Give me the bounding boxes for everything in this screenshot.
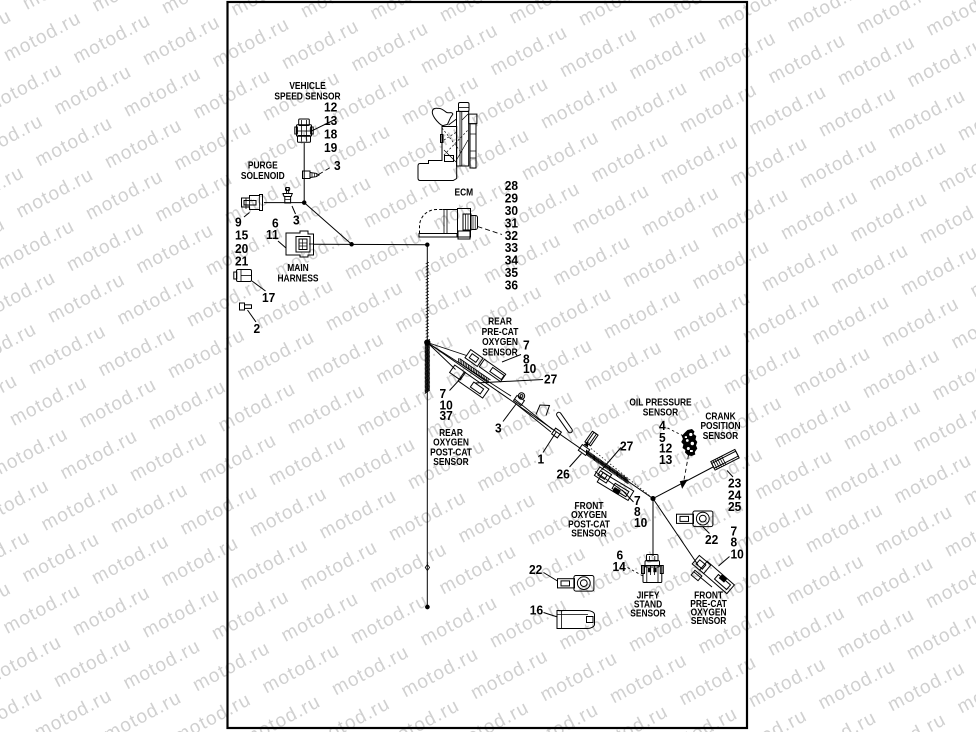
svg-text:27: 27 bbox=[620, 439, 633, 454]
svg-text:21: 21 bbox=[235, 254, 248, 269]
svg-text:SENSOR: SENSOR bbox=[703, 430, 739, 441]
svg-text:37: 37 bbox=[440, 408, 453, 423]
svg-text:1: 1 bbox=[538, 452, 545, 467]
svg-text:SENSOR: SENSOR bbox=[630, 608, 666, 619]
svg-text:36: 36 bbox=[505, 278, 518, 293]
svg-text:17: 17 bbox=[262, 290, 275, 305]
svg-text:18: 18 bbox=[324, 127, 337, 142]
svg-text:22: 22 bbox=[529, 563, 542, 578]
svg-text:SENSOR: SENSOR bbox=[691, 615, 727, 626]
svg-text:SENSOR: SENSOR bbox=[643, 407, 679, 418]
svg-text:SENSOR: SENSOR bbox=[482, 347, 518, 358]
svg-text:2: 2 bbox=[254, 321, 261, 336]
svg-text:19: 19 bbox=[324, 141, 337, 156]
svg-text:13: 13 bbox=[324, 114, 337, 129]
svg-text:7: 7 bbox=[523, 338, 530, 353]
svg-text:HARNESS: HARNESS bbox=[277, 273, 318, 284]
svg-text:PURGE: PURGE bbox=[248, 160, 278, 171]
svg-text:22: 22 bbox=[705, 532, 718, 547]
svg-text:11: 11 bbox=[266, 227, 279, 242]
svg-text:10: 10 bbox=[634, 515, 647, 530]
svg-text:3: 3 bbox=[293, 213, 300, 228]
svg-text:25: 25 bbox=[728, 500, 741, 515]
svg-text:10: 10 bbox=[523, 361, 536, 376]
svg-text:10: 10 bbox=[731, 547, 744, 562]
svg-text:13: 13 bbox=[659, 453, 672, 468]
svg-text:16: 16 bbox=[530, 603, 543, 618]
svg-text:3: 3 bbox=[334, 159, 341, 174]
svg-text:12: 12 bbox=[324, 100, 337, 115]
svg-text:26: 26 bbox=[557, 467, 570, 482]
svg-text:SOLENOID: SOLENOID bbox=[241, 170, 285, 181]
svg-text:PRE-CAT: PRE-CAT bbox=[482, 326, 519, 337]
svg-text:MAIN: MAIN bbox=[287, 262, 309, 273]
svg-text:SENSOR: SENSOR bbox=[571, 528, 607, 539]
svg-text:REAR: REAR bbox=[488, 316, 512, 327]
svg-text:14: 14 bbox=[613, 559, 626, 574]
svg-text:OXYGEN: OXYGEN bbox=[482, 336, 518, 347]
svg-text:3: 3 bbox=[495, 421, 502, 436]
svg-text:VEHICLE: VEHICLE bbox=[289, 80, 325, 91]
svg-text:27: 27 bbox=[544, 372, 557, 387]
svg-text:ECM: ECM bbox=[454, 187, 473, 198]
svg-text:SENSOR: SENSOR bbox=[433, 456, 469, 467]
svg-text:15: 15 bbox=[235, 228, 248, 243]
